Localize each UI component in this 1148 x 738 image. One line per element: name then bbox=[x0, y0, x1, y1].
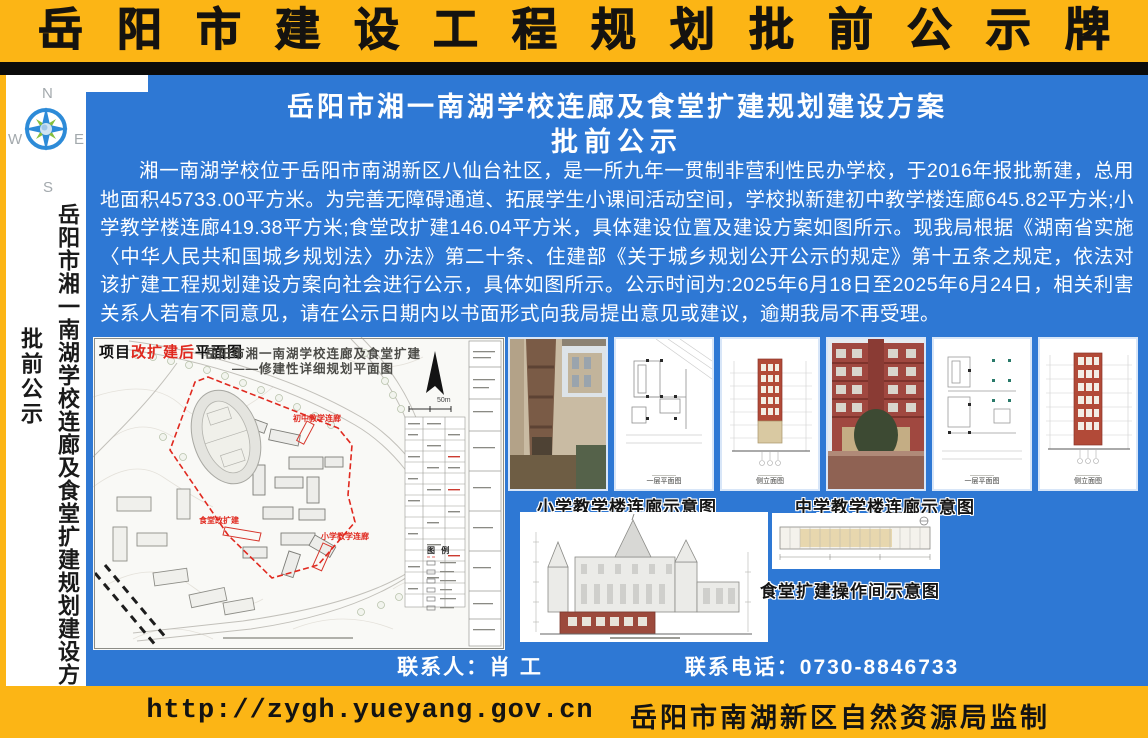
footer-issuer: 岳阳市南湖新区自然资源局监制 bbox=[560, 696, 1120, 735]
label-primary-school-corridor: 小学教学连廊 bbox=[321, 531, 369, 542]
notice-body-text: 湘一南湖学校位于岳阳市南湖新区八仙台社区，是一所九年一贯制非营利性民办学校，于2… bbox=[100, 157, 1134, 329]
notice-main-area: 岳阳市湘一南湖学校连廊及食堂扩建规划建设方案 批前公示 湘一南湖学校位于岳阳市南… bbox=[86, 75, 1148, 686]
caption-canteen-extension: 食堂扩建操作间示意图 bbox=[760, 577, 940, 602]
tile-caption: 侧立面图 bbox=[722, 478, 818, 486]
drawing-fineprint bbox=[970, 475, 993, 476]
sidebar-project-title: 岳阳市湘一南湖学校连廊及食堂扩建规划建设方案 bbox=[51, 203, 83, 709]
drawing-fineprint bbox=[758, 475, 781, 476]
map-scale-label: 50m bbox=[437, 397, 451, 404]
notice-subtitle: 批前公示 bbox=[86, 120, 1148, 159]
site-plan-title-line2: ——修建性详细规划平面图 bbox=[203, 362, 423, 377]
canteen-elevation-panel bbox=[520, 512, 768, 642]
label-canteen-extension: 食堂改扩建 bbox=[199, 515, 239, 526]
drawing-middle-elevation: 侧立面图 bbox=[1038, 337, 1138, 491]
site-plan-title: 岳阳市湘一南湖学校连廊及食堂扩建 ——修建性详细规划平面图 bbox=[203, 347, 423, 377]
corner-label-prefix: 项目 bbox=[99, 344, 131, 361]
footer-url: http://zygh.yueyang.gov.cn bbox=[110, 696, 630, 726]
compass-south-label: S bbox=[43, 179, 53, 196]
header-divider-bar bbox=[0, 62, 1148, 75]
contact-phone: 联系电话：0730-8846733 bbox=[685, 651, 959, 681]
photo-middle-corridor bbox=[826, 337, 926, 491]
drawing-middle-floor-plan: 一层平面图 bbox=[932, 337, 1032, 491]
compass-rose-icon: N S W E bbox=[6, 85, 86, 197]
compass-star-icon bbox=[18, 101, 74, 157]
board-footer: http://zygh.yueyang.gov.cn 岳阳市南湖新区自然资源局监… bbox=[0, 686, 1148, 738]
drawing-fineprint bbox=[1076, 475, 1099, 476]
tile-caption: 一层平面图 bbox=[616, 478, 712, 486]
site-plan-title-line1: 岳阳市湘一南湖学校连廊及食堂扩建 bbox=[203, 347, 423, 362]
contact-person: 联系人：肖 工 bbox=[397, 651, 543, 681]
canteen-plan-panel bbox=[772, 513, 940, 569]
site-plan-panel: 项目改扩建后平面图 岳阳市湘一南湖学校连廊及食堂扩建 ——修建性详细规划平面图 … bbox=[93, 337, 505, 650]
corner-label-highlight: 改扩建后 bbox=[131, 344, 195, 361]
site-plan-drawing bbox=[93, 337, 505, 650]
tile-caption: 侧立面图 bbox=[1040, 478, 1136, 486]
sidebar-stage-label: 批前公示 bbox=[14, 327, 46, 427]
map-legend-title: 图 例 bbox=[427, 545, 451, 556]
photo-primary-corridor bbox=[508, 337, 608, 491]
drawing-primary-elevation: 侧立面图 bbox=[720, 337, 820, 491]
label-middle-school-corridor: 初中教学连廊 bbox=[293, 413, 341, 424]
drawing-fineprint bbox=[652, 475, 675, 476]
sidebar: N S W E 岳阳市湘一南湖学校连廊及食堂扩建规划建设方案 批前公示 bbox=[6, 75, 86, 686]
board-header: 岳阳市建设工程规划批前公示牌 bbox=[0, 0, 1148, 62]
notice-title: 岳阳市湘一南湖学校连廊及食堂扩建规划建设方案 bbox=[86, 85, 1148, 124]
board-main-title: 岳阳市建设工程规划批前公示牌 bbox=[0, 0, 1148, 60]
drawing-primary-floor-plan: 一层平面图 bbox=[614, 337, 714, 491]
tile-caption: 一层平面图 bbox=[934, 478, 1030, 486]
compass-east-label: E bbox=[74, 131, 84, 148]
compass-north-label: N bbox=[42, 85, 53, 102]
notice-board: 岳阳市建设工程规划批前公示牌 N S W E 岳阳市湘一南湖学校连廊及食堂扩建规… bbox=[0, 0, 1148, 738]
